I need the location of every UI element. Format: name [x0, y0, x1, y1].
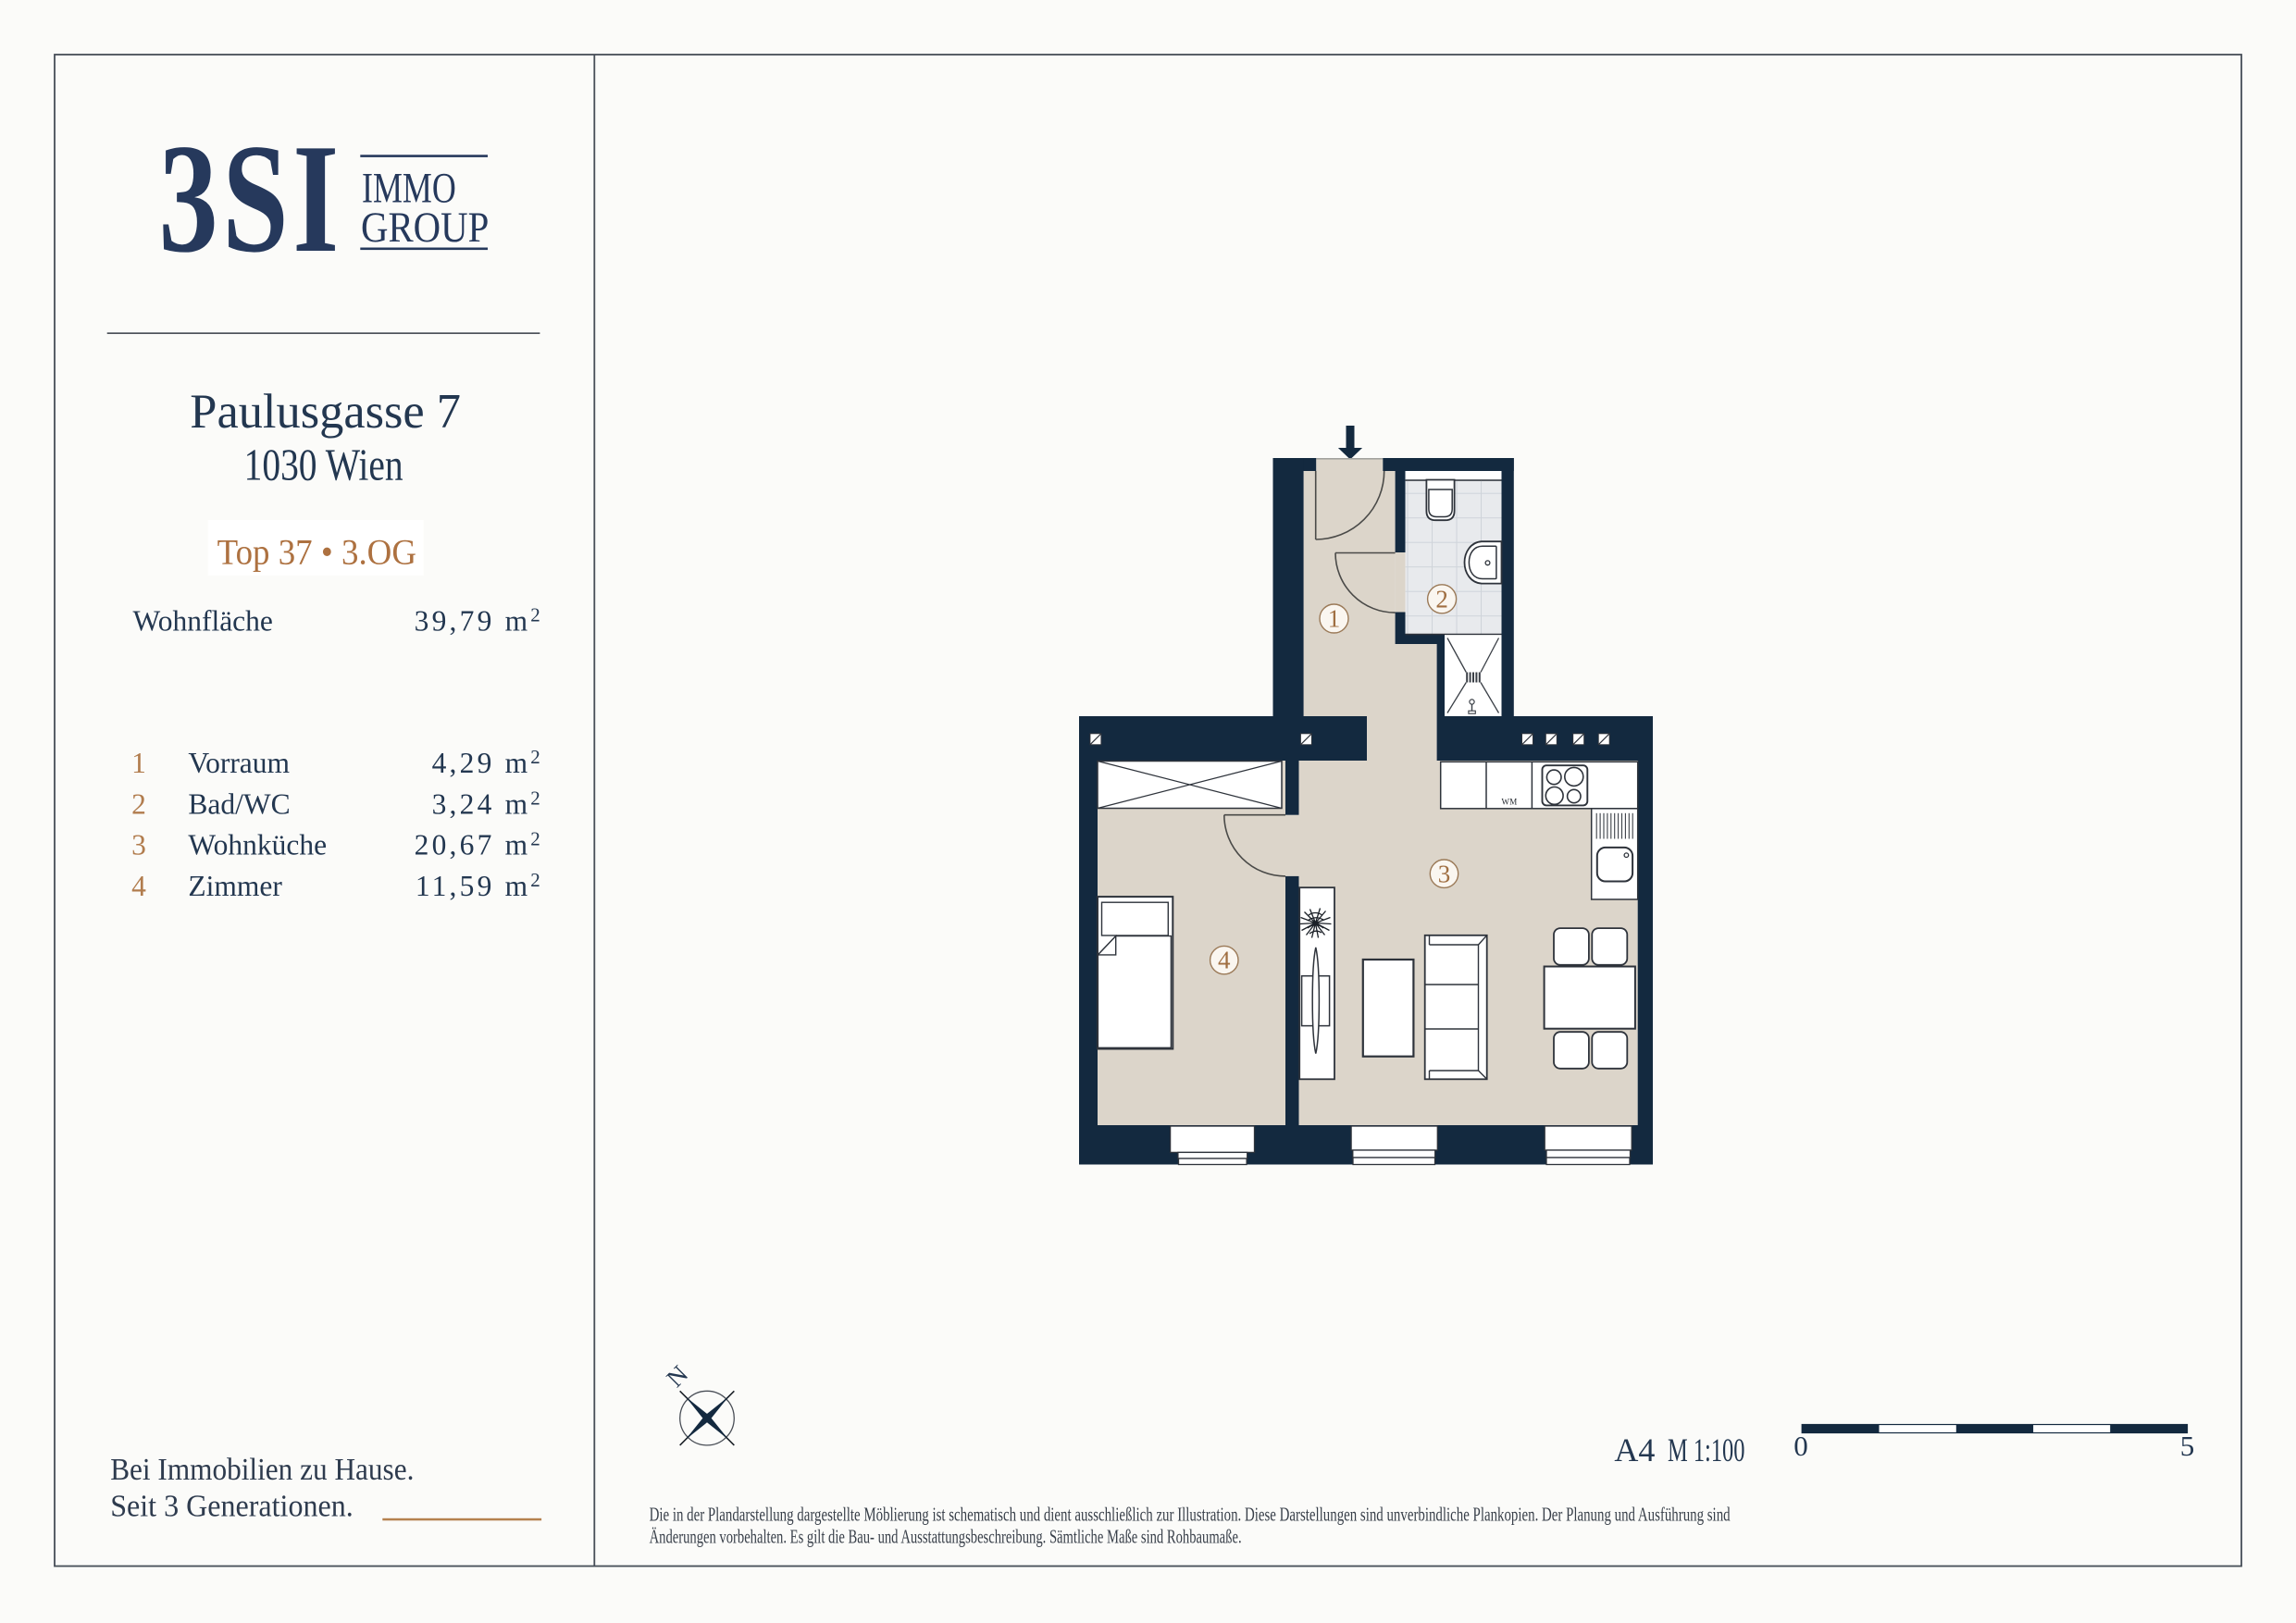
svg-text:0: 0 — [1793, 1430, 1808, 1462]
svg-text:Top 37 • 3.OG: Top 37 • 3.OG — [217, 533, 416, 573]
svg-text:Seit 3 Generationen.: Seit 3 Generationen. — [110, 1489, 354, 1523]
svg-text:Wohnküche: Wohnküche — [188, 829, 327, 861]
svg-text:N: N — [661, 1360, 693, 1393]
svg-text:Änderungen vorbehalten. Es gil: Änderungen vorbehalten. Es gilt die Bau-… — [650, 1526, 1242, 1548]
svg-text:1030 Wien: 1030 Wien — [244, 440, 403, 490]
svg-text:Zimmer: Zimmer — [188, 870, 282, 902]
svg-text:Wohnfläche: Wohnfläche — [133, 604, 273, 637]
svg-text:Paulusgasse 7: Paulusgasse 7 — [190, 385, 461, 439]
svg-text:Bei Immobilien zu Hause.: Bei Immobilien zu Hause. — [110, 1453, 414, 1487]
svg-text:20,67 m2: 20,67 m2 — [415, 828, 543, 861]
svg-text:Bad/WC: Bad/WC — [188, 788, 290, 821]
svg-text:5: 5 — [2180, 1430, 2195, 1462]
svg-text:M 1:100: M 1:100 — [1668, 1431, 1745, 1468]
svg-text:1: 1 — [1328, 605, 1341, 633]
svg-text:A4: A4 — [1614, 1431, 1655, 1468]
svg-text:GROUP: GROUP — [361, 204, 489, 252]
svg-text:39,79 m2: 39,79 m2 — [415, 603, 543, 637]
svg-text:Vorraum: Vorraum — [188, 747, 290, 779]
svg-text:3: 3 — [131, 829, 146, 861]
svg-text:Die in der Plandarstellung dar: Die in der Plandarstellung dargestellte … — [650, 1504, 1731, 1526]
svg-text:1: 1 — [131, 747, 146, 779]
svg-text:WM: WM — [1501, 798, 1517, 807]
svg-text:3SI: 3SI — [159, 112, 343, 285]
svg-text:3,24 m2: 3,24 m2 — [432, 787, 543, 821]
svg-text:11,59 m2: 11,59 m2 — [416, 869, 543, 902]
svg-text:4,29 m2: 4,29 m2 — [432, 746, 543, 779]
svg-text:4: 4 — [131, 870, 146, 902]
svg-text:4: 4 — [1218, 947, 1231, 974]
svg-text:2: 2 — [131, 788, 146, 821]
svg-text:3: 3 — [1438, 860, 1451, 887]
svg-text:2: 2 — [1435, 586, 1448, 613]
